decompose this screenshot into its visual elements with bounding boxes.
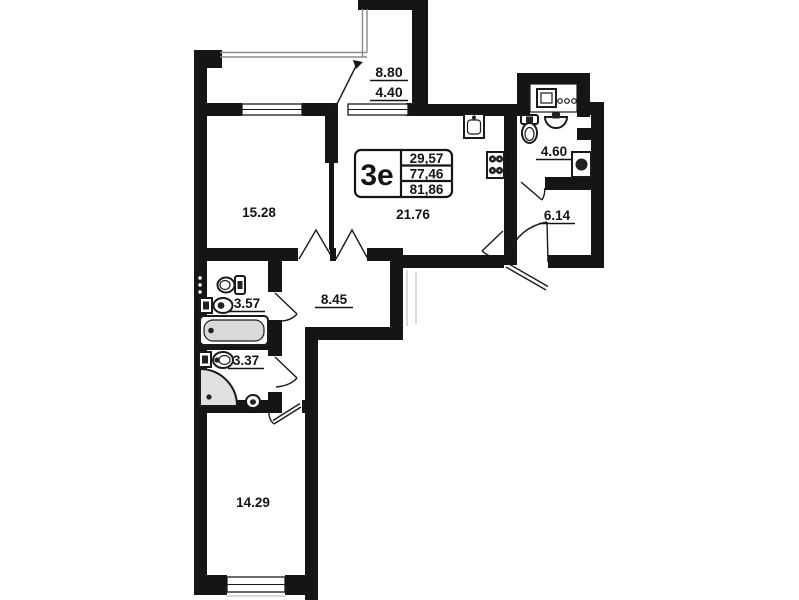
sink-icon <box>200 298 233 313</box>
wall-sink-icon <box>545 113 567 129</box>
stamp-unit-label: 3е <box>360 159 393 192</box>
stamp-living-area: 29,57 <box>410 151 444 166</box>
window-bedroom-bottom <box>227 577 285 596</box>
door-kitchen-hall <box>336 230 368 259</box>
door-kitchen-entry <box>482 231 503 258</box>
balcony-area-counted: 4.40 <box>375 84 402 100</box>
sink-icon <box>199 352 211 367</box>
room-label-bathroom-large: 3.57 <box>234 296 260 311</box>
balcony-area-full: 8.80 <box>375 64 402 80</box>
door-bathroom-entrance <box>521 182 545 200</box>
balcony-labels: 8.80 4.40 <box>370 64 408 101</box>
window-kitchen <box>348 104 408 115</box>
floor-plan-page: 3е 29,57 77,46 81,86 15.28 21.76 14.29 8… <box>0 0 799 600</box>
door-bathroom-small <box>275 357 297 387</box>
room-label-bedroom-top: 15.28 <box>242 205 276 220</box>
balcony-glazing <box>220 9 367 57</box>
door-balcony <box>335 60 363 108</box>
floor-plan-svg: 3е 29,57 77,46 81,86 15.28 21.76 14.29 8… <box>0 0 799 600</box>
corridor-outline <box>407 270 416 326</box>
door-bathroom-large <box>275 293 297 321</box>
room-label-bedroom-bottom: 14.29 <box>236 495 270 510</box>
toilet-icon <box>213 352 233 368</box>
towel-radiator-icon <box>198 276 203 295</box>
floor-drain-icon <box>246 395 260 408</box>
stamp-area-without-balcony: 77,46 <box>410 167 444 182</box>
bathtub-icon <box>200 316 268 345</box>
door-bedroom-top <box>299 230 333 259</box>
stove-4-burner-icon <box>487 152 504 178</box>
room-label-bathroom-small: 3.37 <box>233 353 259 368</box>
toilet-icon <box>218 276 246 294</box>
room-label-bathroom-entrance: 4.60 <box>541 144 567 159</box>
room-label-kitchen-living: 21.76 <box>396 207 430 222</box>
toilet-icon <box>521 115 538 143</box>
counter-sink-icon <box>530 84 577 112</box>
room-label-entry-hall: 6.14 <box>544 208 571 223</box>
kitchen-sink-icon <box>464 114 484 138</box>
room-label-hallway: 8.45 <box>321 292 348 307</box>
window-bedroom-top <box>242 104 302 115</box>
apartment-stamp: 3е 29,57 77,46 81,86 <box>355 150 452 197</box>
stamp-total-area: 81,86 <box>410 182 444 197</box>
washing-machine-icon <box>572 152 591 177</box>
corner-shower-icon <box>200 369 237 406</box>
